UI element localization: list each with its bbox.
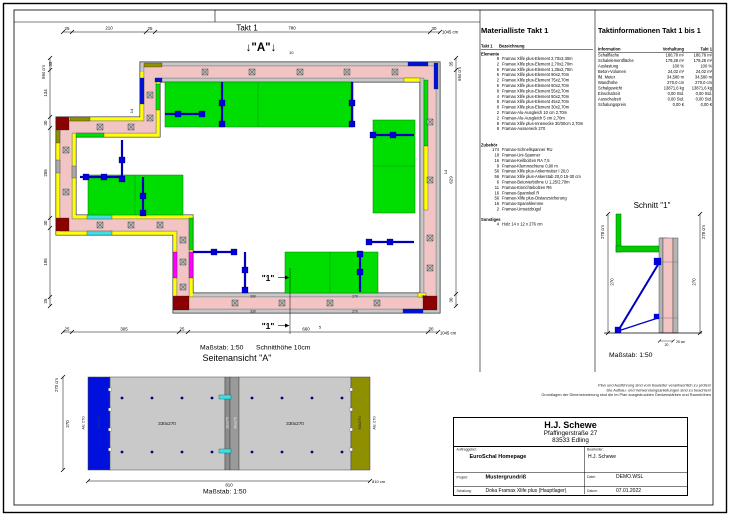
svg-text:278 cm: 278 cm — [701, 225, 706, 239]
svg-text:14: 14 — [129, 108, 134, 113]
svg-text:660: 660 — [302, 327, 310, 332]
cycle-info-title: Taktinformationen Takt 1 bis 1 — [598, 26, 712, 35]
svg-text:5: 5 — [319, 325, 322, 330]
cell-datum: Datum:07.01.2022 — [584, 487, 687, 494]
cell-datei: Datei:DEMO.WSL — [584, 473, 687, 487]
svg-text:AE 270: AE 270 — [372, 416, 377, 430]
date-value: 07.01.2022 — [616, 488, 641, 494]
section-braces — [615, 258, 661, 333]
section-scale-note: Maßstab: 1:50 — [609, 352, 653, 359]
svg-text:780: 780 — [288, 26, 296, 31]
svg-text:330x270: 330x270 — [158, 421, 176, 426]
cycle-info-rows: Schalfläche180,78 m²180,78 m²Schalelemen… — [598, 53, 712, 108]
material-row: 4Holz 14 x 12 x 276 cm — [481, 222, 593, 227]
project-value: Mustergrundriß — [486, 474, 527, 480]
svg-text:255: 255 — [43, 169, 48, 177]
file-value: DEMO.WSL — [616, 474, 643, 480]
svg-text:10x270: 10x270 — [226, 417, 230, 429]
svg-text:25: 25 — [65, 327, 70, 332]
section-wall — [659, 238, 678, 333]
svg-text:25: 25 — [65, 26, 70, 31]
svg-text:195: 195 — [43, 258, 48, 266]
material-rows-sonstiges: 4Holz 14 x 12 x 276 cm — [481, 222, 593, 227]
svg-text:270: 270 — [352, 295, 358, 299]
svg-text:50x270: 50x270 — [357, 416, 362, 430]
section-a-marker: ↓"A"↓ — [246, 42, 277, 54]
plan-view: 25 210 25 780 30 1045 cm 25 305 25 660 3… — [41, 26, 462, 352]
formwork-value: Doka Framax Xlife plus (Hauptlager) — [486, 488, 567, 494]
material-rows-elemente: 8Framax Xlife plus-Element 2,70x3,30m2Fr… — [481, 57, 593, 133]
material-list: Materialliste Takt 1 Takt 1 Bezeichnung … — [481, 26, 593, 411]
svg-text:1045 cm: 1045 cm — [440, 331, 457, 336]
material-row: 8Framax-Ausseneck 270 — [481, 127, 593, 132]
svg-text:305: 305 — [120, 327, 128, 332]
section-1-label-b: "1" — [262, 321, 275, 331]
client-value: EuroSchal Homepage — [470, 454, 582, 460]
material-row: 2Framax-Umsetzbügel — [481, 207, 593, 212]
section-1-label-a: "1" — [262, 273, 275, 283]
svg-text:150: 150 — [421, 295, 427, 299]
material-rows-zubehoer: 174Framax-Schnellspanner RU18Framax-Uni-… — [481, 148, 593, 213]
svg-text:330: 330 — [250, 310, 256, 314]
svg-text:AE 270: AE 270 — [81, 416, 86, 430]
plan-scale-note: Maßstab: 1:50 — [200, 345, 244, 352]
svg-text:25: 25 — [148, 26, 153, 31]
svg-text:330x270: 330x270 — [286, 421, 304, 426]
svg-text:694 cm: 694 cm — [457, 67, 462, 81]
svg-text:30: 30 — [43, 120, 48, 125]
material-list-title: Materialliste Takt 1 — [481, 26, 593, 35]
svg-text:25: 25 — [43, 298, 48, 303]
drawing-sheet: Takt 1 — [0, 0, 730, 516]
svg-text:25: 25 — [180, 327, 185, 332]
svg-text:270: 270 — [65, 420, 70, 428]
title-block: H.J. Schewe Pfaffingerstraße 27 83533 Ed… — [453, 417, 688, 496]
svg-text:25 cm: 25 cm — [676, 340, 685, 344]
section-detail-title: Schnitt "1" — [634, 201, 671, 210]
material-list-header: Takt 1 Bezeichnung — [481, 44, 593, 50]
svg-text:810: 810 — [225, 483, 233, 488]
svg-text:629: 629 — [449, 176, 454, 184]
cell-bearbeiter: Bearbeiter: H.J. Schewe — [584, 447, 687, 473]
svg-text:210: 210 — [105, 26, 113, 31]
svg-text:278 cm: 278 cm — [600, 225, 605, 239]
svg-text:1045 cm: 1045 cm — [442, 30, 459, 35]
svg-text:30: 30 — [432, 26, 437, 31]
svg-text:30: 30 — [449, 297, 454, 302]
svg-text:35: 35 — [449, 61, 454, 66]
side-view-scale-note: Maßstab: 1:50 — [203, 489, 247, 496]
svg-text:330: 330 — [250, 295, 256, 299]
svg-text:810 cm: 810 cm — [372, 479, 386, 484]
svg-text:270 cm: 270 cm — [54, 378, 59, 392]
svg-text:30x270: 30x270 — [234, 417, 238, 429]
section-a-sub: 10 — [289, 50, 294, 55]
svg-text:30: 30 — [43, 220, 48, 225]
plan-area-header: Takt 1 — [236, 24, 258, 33]
svg-text:60x270: 60x270 — [96, 416, 101, 430]
svg-text:270: 270 — [352, 310, 358, 314]
svg-text:694 cm: 694 cm — [41, 65, 46, 79]
cell-schalung: Schalung:Doka Framax Xlife plus (Hauptla… — [454, 487, 584, 494]
svg-text:14: 14 — [443, 169, 448, 174]
svg-text:35: 35 — [48, 61, 53, 66]
cell-auftraggeber: Auftraggeber: EuroSchal Homepage — [454, 447, 584, 473]
side-view-title: Seitenansicht "A" — [203, 353, 272, 363]
svg-text:30: 30 — [429, 327, 434, 332]
disclaimer-notes: Plan und Ausführung sind vom Bauleiter v… — [430, 383, 711, 412]
plan-cut-height-note: Schnitthöhe 10cm — [256, 345, 311, 352]
company-address1: Pfaffingerstraße 27 — [454, 430, 687, 437]
title-block-company: H.J. Schewe Pfaffingerstraße 27 83533 Ed… — [454, 418, 687, 447]
cycle-info-table: Taktinformationen Takt 1 bis 1 Informati… — [598, 26, 712, 168]
side-view: Seitenansicht "A" AE 270 60x270 330x270 — [54, 353, 386, 496]
company-name: H.J. Schewe — [454, 420, 687, 430]
section-detail: Schnitt "1" — [600, 201, 706, 359]
note-line: Grundlagen der Dimensionierung sind die … — [430, 393, 711, 398]
svg-text:20: 20 — [665, 343, 669, 347]
svg-text:270: 270 — [610, 278, 615, 286]
editor-value: H.J. Schewe — [588, 454, 685, 460]
svg-text:134: 134 — [43, 89, 48, 97]
company-address2: 83533 Edling — [454, 437, 687, 444]
svg-text:270: 270 — [692, 278, 697, 286]
cell-projekt: Projekt:Mustergrundriß — [454, 473, 584, 487]
cycle-info-row: Schalungspreis0,00 €0,00 € — [598, 102, 712, 108]
